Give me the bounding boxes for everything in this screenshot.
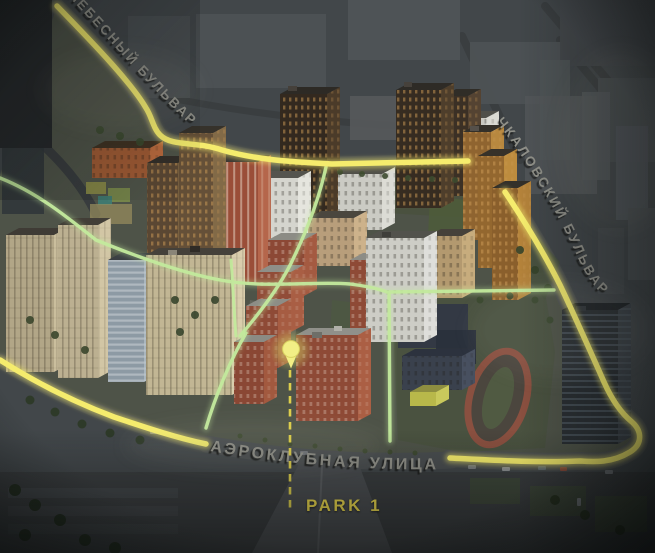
tree (29, 499, 41, 511)
tree (359, 171, 365, 177)
tree (477, 297, 484, 304)
roof-unit (168, 250, 177, 255)
tree (516, 246, 524, 254)
city-block (470, 478, 520, 504)
tree (388, 450, 393, 455)
tree (26, 396, 35, 405)
tree (531, 266, 539, 274)
park1-marker-pin[interactable] (283, 341, 300, 358)
city-block (0, 0, 52, 148)
tree (19, 529, 31, 541)
building (146, 248, 245, 395)
roof-unit (190, 246, 200, 252)
city-block (196, 14, 326, 88)
tree (413, 451, 418, 456)
tree (51, 331, 59, 339)
roof-unit (382, 232, 391, 237)
tree (580, 510, 590, 520)
tree (136, 138, 144, 146)
tree (615, 525, 625, 535)
tree (171, 296, 179, 304)
masterplan-map: НЕБЕСНЫЙ БУЛЬВАР ЧКАЛОВСКИЙ БУЛЬВАР АЭРО… (0, 0, 655, 553)
tree (106, 429, 115, 438)
tree (26, 316, 34, 324)
building (6, 228, 67, 372)
car (538, 466, 546, 470)
tree (550, 495, 560, 505)
tree (79, 534, 91, 546)
park1-label[interactable]: PARK 1 (306, 496, 382, 515)
roof-unit (404, 82, 412, 87)
tree (78, 420, 87, 429)
car (468, 465, 476, 469)
building (396, 83, 454, 208)
city-block (8, 488, 178, 498)
tree (9, 484, 21, 496)
tree (116, 132, 124, 140)
roof-unit (334, 326, 342, 331)
city-block (348, 0, 460, 60)
building (402, 349, 475, 390)
tree (191, 311, 199, 319)
roof-unit (312, 332, 322, 338)
roof-unit (288, 86, 297, 91)
car (605, 470, 613, 474)
tree (382, 173, 388, 179)
tree (211, 296, 219, 304)
city-block (8, 524, 178, 534)
footpath (389, 294, 390, 441)
tree (405, 175, 411, 181)
masterplan-viewport[interactable]: НЕБЕСНЫЙ БУЛЬВАР ЧКАЛОВСКИЙ БУЛЬВАР АЭРО… (0, 0, 655, 553)
tree (54, 514, 66, 526)
car (577, 498, 581, 506)
tree (452, 177, 458, 183)
tree (337, 169, 343, 175)
roof-unit (470, 126, 479, 131)
tree (51, 408, 60, 417)
tree (429, 176, 435, 182)
car (502, 467, 510, 471)
tree (176, 328, 184, 336)
tree (81, 346, 89, 354)
car (560, 467, 567, 471)
